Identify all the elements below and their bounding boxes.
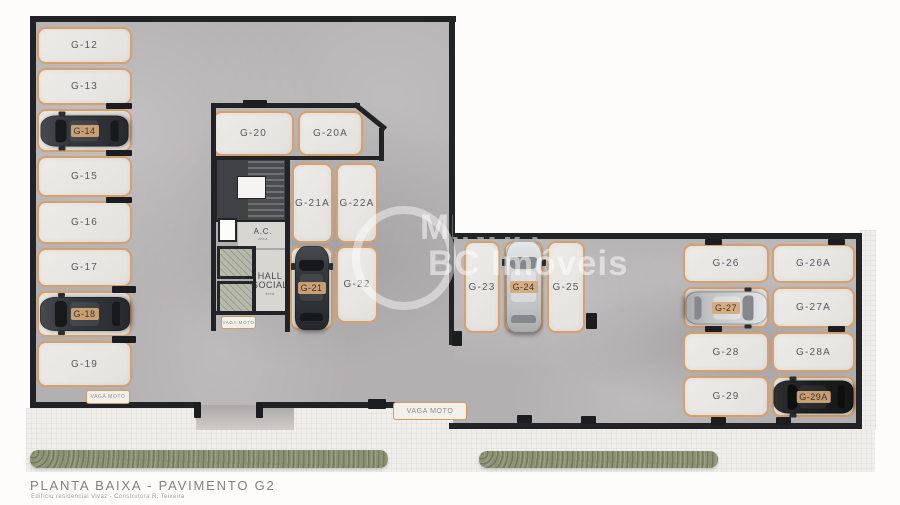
car-mirror-icon	[58, 293, 65, 297]
car-space-label: G-27	[712, 302, 740, 314]
stairwell	[215, 158, 287, 222]
pillar-post	[705, 239, 722, 245]
space-label: G-26A	[796, 258, 831, 269]
wall-segment	[449, 423, 862, 429]
space-label: G-20A	[313, 128, 348, 139]
space-label: G-20	[240, 128, 267, 139]
hall-label-line2: SOCIAL	[252, 280, 288, 290]
parking-space-g-13: G-13	[37, 68, 132, 105]
wall-segment	[449, 16, 455, 239]
garage-entrance-ramp	[196, 405, 294, 430]
space-label: G-22A	[340, 198, 375, 209]
car-mirror-icon	[329, 263, 333, 270]
ac-label-text: A.C.	[254, 227, 273, 236]
car-windshield	[299, 260, 324, 271]
pillar-post	[517, 415, 532, 423]
parking-space-g-29: G-29	[683, 376, 769, 417]
space-label: G-15	[71, 171, 98, 182]
wall-segment	[211, 103, 216, 331]
parking-space-g-22: G-22	[336, 246, 378, 323]
space-label: G-28	[712, 347, 739, 358]
parking-space-g-25: G-25	[547, 241, 585, 333]
car-windshield	[510, 257, 537, 269]
car-mirror-icon	[502, 259, 506, 266]
vaga-moto-badge: VAGA MOTO	[86, 390, 130, 404]
car-space-label: G-24	[509, 281, 537, 293]
parking-space-g-27a: G-27A	[772, 287, 855, 328]
car-mirror-icon	[790, 376, 797, 380]
pillar-post	[828, 239, 845, 245]
car-rear-window	[511, 315, 536, 323]
parking-space-g-26a: G-26A	[772, 244, 855, 283]
parking-space-g-23: G-23	[464, 241, 500, 333]
space-label: G-12	[71, 40, 98, 51]
pillar-post	[705, 326, 722, 332]
vaga-moto-badge: VAGA MOTO	[221, 316, 256, 329]
parking-space-g-12: G-12	[37, 27, 132, 64]
space-label: G-22	[343, 279, 370, 290]
wall-segment	[211, 156, 383, 160]
parking-space-g-22a: G-22A	[336, 163, 378, 243]
car-windshield	[55, 119, 66, 142]
car-windshield	[55, 301, 67, 326]
space-label: G-25	[552, 282, 579, 293]
car-mirror-icon	[58, 331, 65, 335]
space-label: G-29	[712, 391, 739, 402]
car-rear-window	[300, 313, 324, 321]
pillar-post	[581, 416, 596, 424]
space-label: G-21A	[295, 198, 330, 209]
parking-space-g-21a: G-21A	[292, 163, 333, 243]
car-mirror-icon	[291, 263, 295, 270]
space-label: G-19	[71, 359, 98, 370]
space-label: G-17	[71, 262, 98, 273]
car-rear-window	[112, 302, 120, 326]
car-rear-window	[111, 120, 119, 142]
pillar-post	[112, 336, 136, 343]
wall-segment	[211, 311, 289, 315]
space-label: G-27A	[796, 302, 831, 313]
pillar-post	[112, 286, 136, 293]
stair-landing	[237, 176, 266, 199]
pillar-post	[368, 399, 386, 409]
pillar-post	[828, 326, 845, 332]
pillar-post	[106, 197, 132, 203]
space-label: G-13	[71, 81, 98, 92]
space-label: G-28A	[796, 347, 831, 358]
wall-segment	[285, 158, 290, 332]
window	[218, 218, 237, 242]
wall-segment	[253, 246, 256, 314]
parking-space-g-15: G-15	[37, 156, 132, 197]
ac-area-note: área	[240, 237, 286, 241]
parking-space-g-28a: G-28A	[772, 332, 855, 372]
pillar-post	[452, 331, 462, 346]
car-space-label: G-18	[70, 308, 98, 320]
wall-segment	[449, 233, 862, 239]
car-space-label: G-14	[70, 125, 98, 137]
car-rear-window	[838, 385, 845, 408]
parking-space-g-28: G-28	[683, 332, 769, 372]
parking-space-g-20a: G-20A	[298, 111, 363, 156]
wall-segment	[449, 239, 454, 345]
car-mirror-icon	[58, 146, 65, 150]
space-label: G-23	[468, 282, 495, 293]
floor-plan-page: A.C. área HALL SOCIAL área G-12G-13 G-14…	[0, 0, 900, 505]
parking-space-g-19: G-19	[37, 341, 132, 387]
wall-segment	[856, 233, 862, 429]
car-mirror-icon	[542, 259, 546, 266]
parking-space-g-17: G-17	[37, 248, 132, 287]
car-mirror-icon	[58, 111, 65, 115]
pillar-post	[194, 402, 201, 418]
pillar-post	[256, 402, 263, 418]
wall-segment	[30, 16, 456, 22]
parking-space-g-16: G-16	[37, 201, 132, 244]
parking-space-g-20: G-20	[213, 111, 294, 156]
car-space-label: G-29A	[796, 391, 831, 403]
parking-space-g-26: G-26	[683, 244, 769, 283]
sidewalk-right-strip	[860, 230, 876, 430]
car-windshield	[742, 295, 753, 319]
pillar-post	[776, 417, 791, 425]
wall-segment	[211, 103, 360, 108]
pillar-post	[106, 150, 132, 156]
pillar-post	[106, 103, 132, 109]
page-subtitle: Edifício residencial Vivaz - Construtora…	[31, 494, 185, 500]
pillar-post	[586, 313, 597, 329]
space-label: G-16	[71, 217, 98, 228]
pillar-post	[243, 100, 267, 108]
page-title: PLANTA BAIXA - PAVIMENTO G2	[30, 478, 276, 493]
car-space-label: G-21	[297, 282, 325, 294]
car-rear-window	[694, 296, 701, 319]
wall-segment	[30, 16, 36, 408]
hedge-right	[479, 451, 718, 468]
ac-room-label: A.C. área	[240, 228, 286, 242]
hedge-left	[30, 450, 388, 468]
car-mirror-icon	[744, 324, 751, 328]
car-mirror-icon	[744, 287, 751, 291]
vaga-moto-badge: VAGA MOTO	[393, 402, 467, 420]
pillar-post	[711, 417, 726, 425]
space-label: G-26	[712, 258, 739, 269]
